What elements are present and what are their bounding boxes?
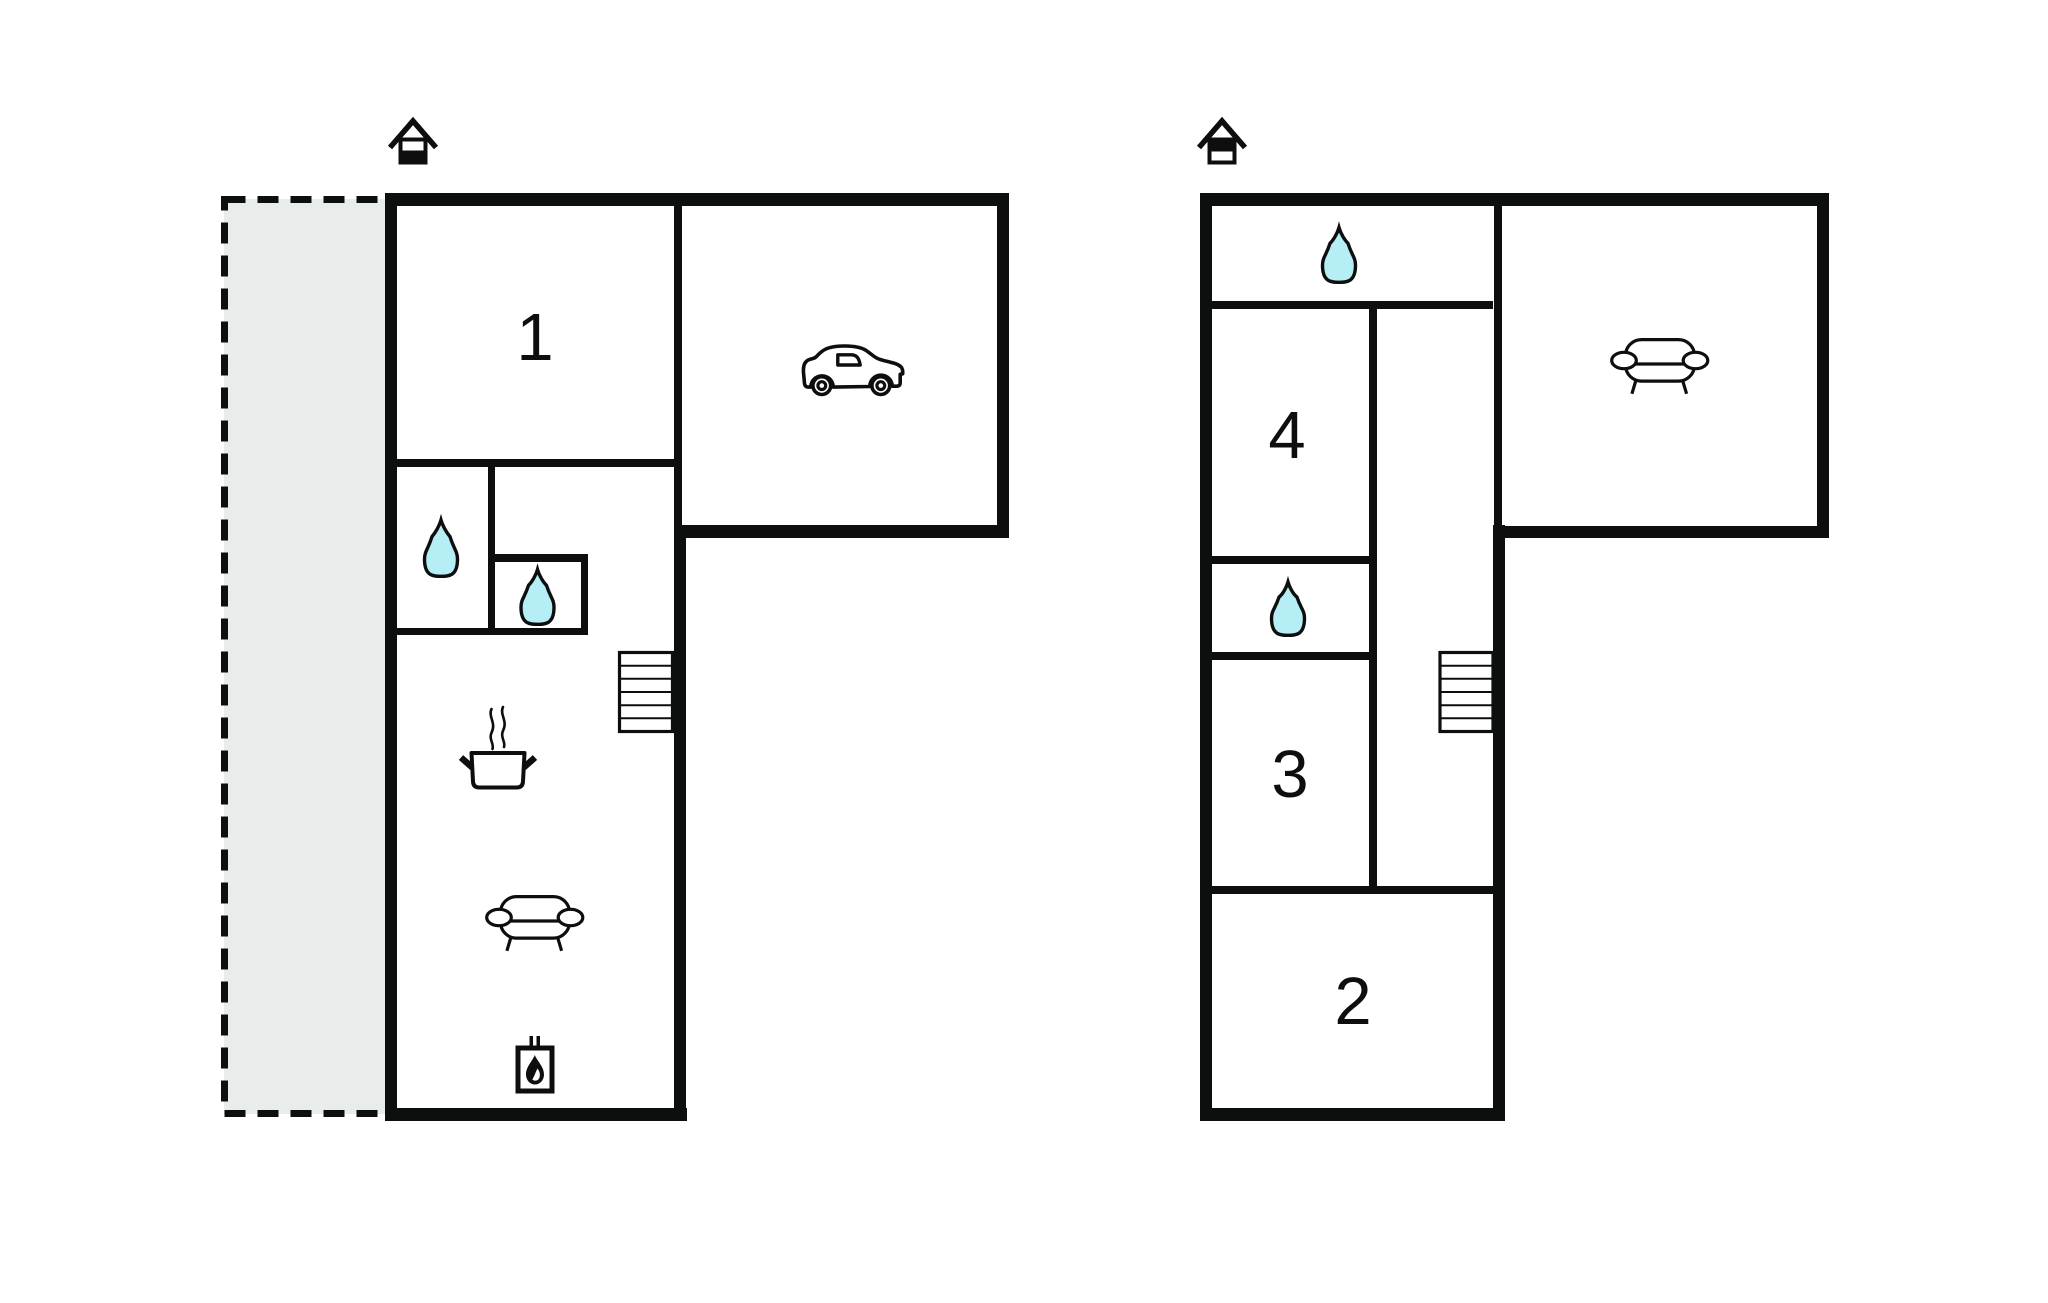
svg-text:4: 4 xyxy=(1268,398,1305,473)
svg-text:2: 2 xyxy=(1334,964,1371,1039)
svg-text:1: 1 xyxy=(516,300,553,375)
svg-text:3: 3 xyxy=(1271,737,1308,812)
